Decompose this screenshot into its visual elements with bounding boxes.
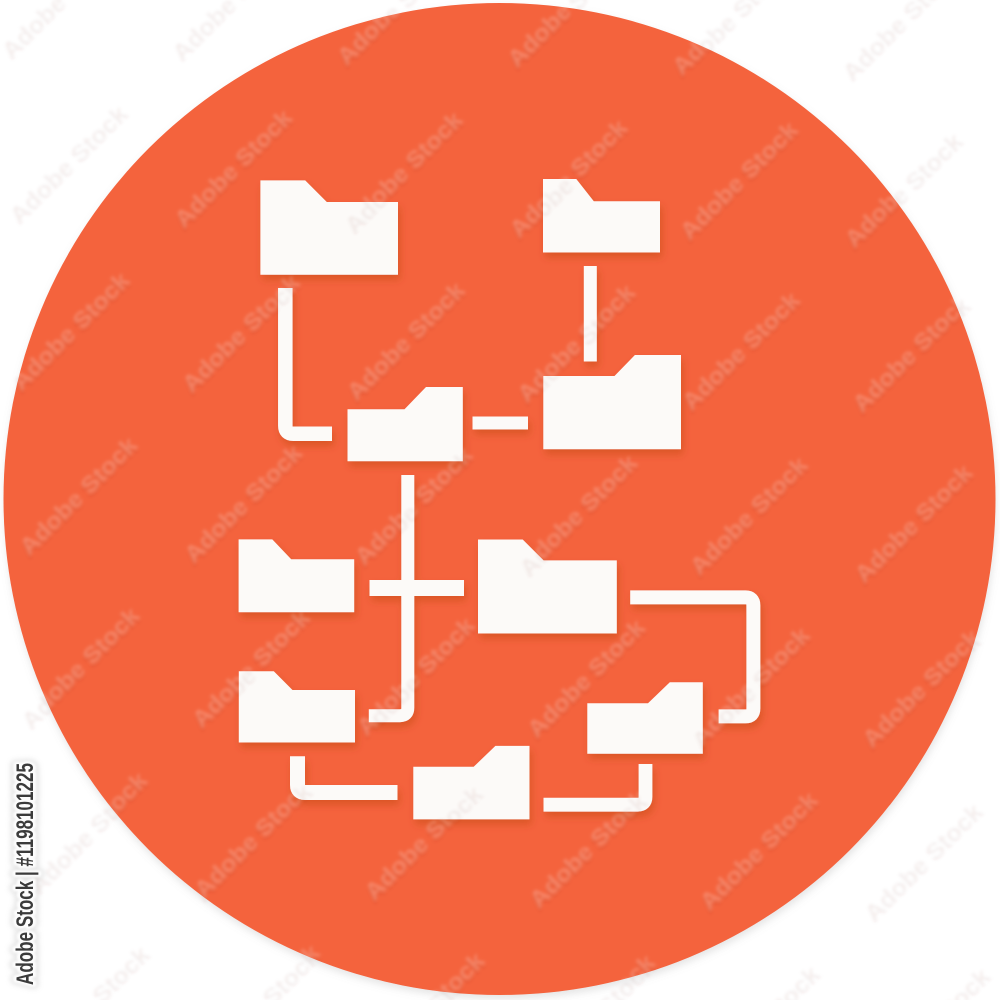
svg-text:Adobe Stock | #1198101225: Adobe Stock | #1198101225 [12, 763, 39, 985]
